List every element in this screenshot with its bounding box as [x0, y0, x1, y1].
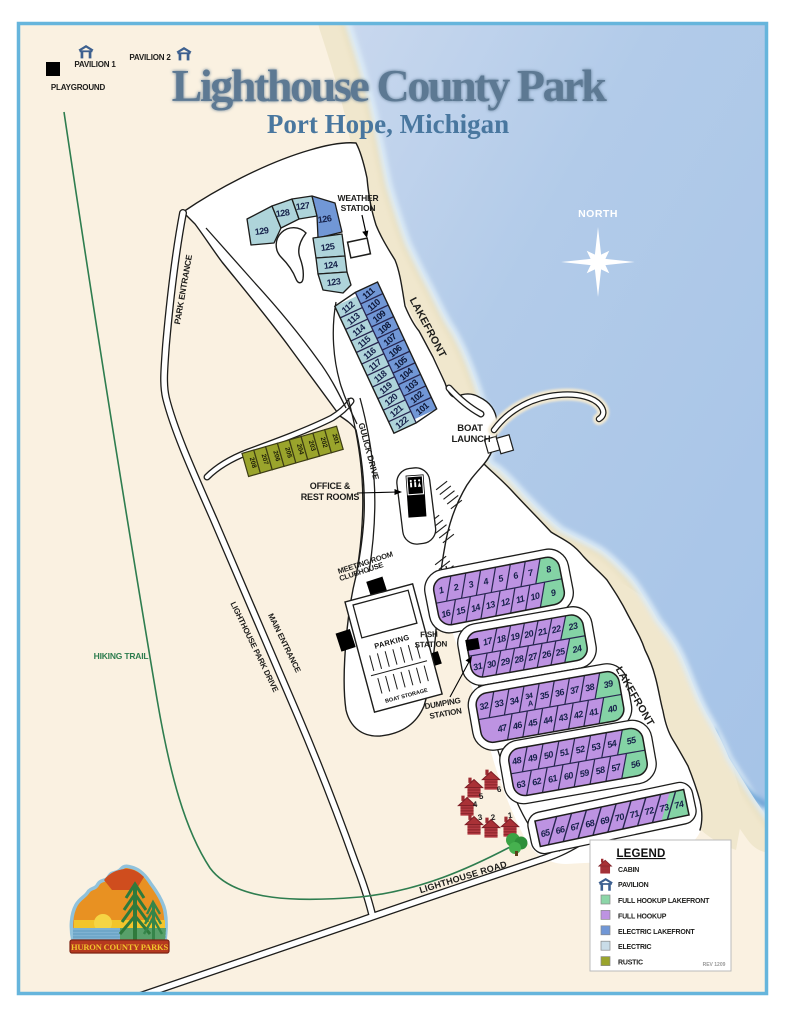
svg-text:FULL HOOKUP LAKEFRONT: FULL HOOKUP LAKEFRONT	[618, 898, 710, 905]
svg-text:Lighthouse County Park: Lighthouse County Park	[172, 60, 608, 111]
svg-text:CABIN: CABIN	[618, 867, 639, 874]
svg-text:124: 124	[323, 259, 338, 271]
svg-text:RUSTIC: RUSTIC	[618, 960, 643, 967]
svg-text:LEGEND: LEGEND	[616, 848, 665, 860]
svg-text:STATION: STATION	[415, 639, 448, 649]
svg-text:Port Hope, Michigan: Port Hope, Michigan	[267, 109, 509, 139]
svg-text:ELECTRIC: ELECTRIC	[618, 944, 652, 951]
svg-text:127: 127	[295, 200, 310, 212]
svg-text:LAUNCH: LAUNCH	[452, 434, 491, 445]
svg-text:REV 1209: REV 1209	[703, 962, 726, 968]
svg-text:REST ROOMS: REST ROOMS	[301, 492, 360, 502]
svg-text:125: 125	[320, 241, 335, 253]
svg-text:126: 126	[317, 213, 332, 225]
svg-text:STATION: STATION	[341, 203, 376, 213]
svg-text:ELECTRIC LAKEFRONT: ELECTRIC LAKEFRONT	[618, 929, 695, 936]
svg-text:PAVILION: PAVILION	[618, 882, 649, 889]
svg-text:128: 128	[275, 207, 290, 219]
svg-text:BOAT: BOAT	[457, 423, 483, 434]
svg-text:PAVILION 1: PAVILION 1	[74, 60, 116, 69]
svg-text:FISH: FISH	[420, 630, 438, 640]
svg-text:FULL HOOKUP: FULL HOOKUP	[618, 913, 667, 920]
svg-text:123: 123	[326, 276, 341, 288]
svg-text:OFFICE &: OFFICE &	[310, 481, 351, 491]
svg-text:HURON COUNTY PARKS: HURON COUNTY PARKS	[71, 942, 168, 952]
svg-text:PLAYGROUND: PLAYGROUND	[51, 83, 106, 92]
svg-text:PAVILION 2: PAVILION 2	[129, 53, 171, 62]
svg-text:129: 129	[254, 225, 269, 237]
svg-text:WEATHER: WEATHER	[338, 193, 379, 203]
svg-text:NORTH: NORTH	[578, 208, 618, 220]
svg-text:HIKING TRAIL: HIKING TRAIL	[94, 651, 149, 661]
